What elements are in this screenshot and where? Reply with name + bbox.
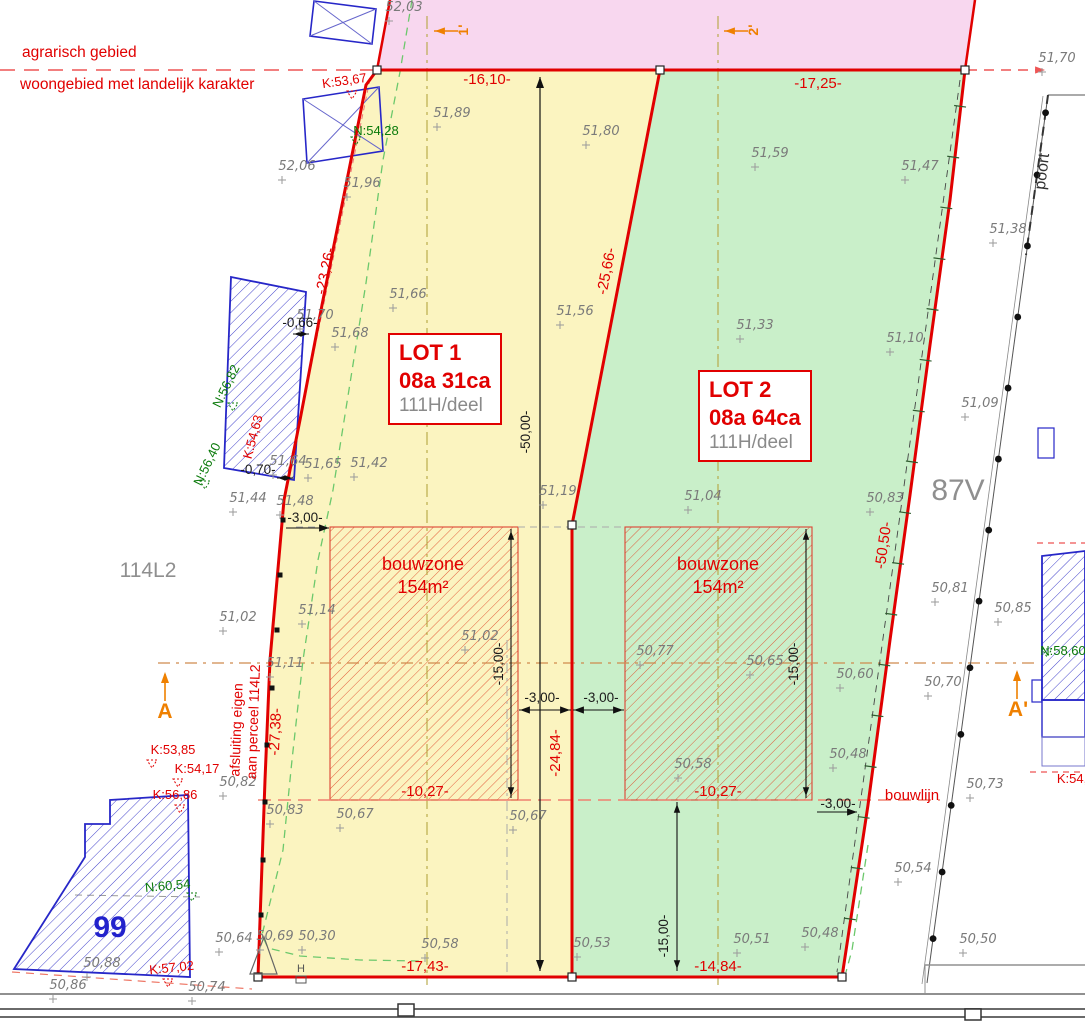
elevation-label: 51,68 <box>331 326 368 341</box>
parcel-number-label: 99 <box>93 911 126 944</box>
fence-post-dot <box>948 802 955 809</box>
elevation-cross <box>924 692 932 700</box>
dimension-label: -27,38- <box>266 708 285 756</box>
elevation-label: 51,44 <box>229 491 266 506</box>
manhole <box>398 1004 414 1016</box>
lot2-area: 08a 64ca <box>709 404 801 432</box>
dimension-label: -10,27- <box>694 783 742 800</box>
dimension-label: -50,00- <box>518 411 533 454</box>
boundary-post <box>278 573 283 578</box>
elevation-label: 50,58 <box>674 757 711 772</box>
dimension-label: -14,84- <box>694 958 742 975</box>
fence-post-dot <box>1005 385 1012 392</box>
lot2-parcel: 111H/deel <box>709 431 801 455</box>
dimension-label: -17,25- <box>794 75 842 92</box>
fence-post-dot <box>939 869 946 876</box>
dimension-label: -3,00- <box>820 796 855 811</box>
arrowhead <box>161 672 169 683</box>
elevation-label: 51,04 <box>684 489 721 504</box>
k-point-label: K:53,85 <box>151 742 196 757</box>
elevation-label: 51,65 <box>304 457 341 472</box>
lot2-info-box: LOT 2 08a 64ca 111H/deel <box>698 370 812 462</box>
boundary-post <box>261 858 266 863</box>
arrowhead <box>1035 66 1045 73</box>
building-right-annex2 <box>1042 737 1085 766</box>
k-point-label: K:54, <box>1057 771 1085 786</box>
elevation-label: 50,86 <box>49 978 86 993</box>
elevation-label: 51,38 <box>989 222 1026 237</box>
k-point-label: K:53,67 <box>321 70 367 91</box>
bench-mark-icon <box>173 779 183 787</box>
elevation-label: 51,11 <box>266 656 303 671</box>
elevation-label: 50,51 <box>733 932 770 947</box>
parcel-number-label: 87V <box>931 474 984 507</box>
dimension-label: -15,00- <box>656 915 671 958</box>
elevation-cross <box>219 792 227 800</box>
elevation-label: 51,96 <box>343 176 380 191</box>
elevation-cross <box>961 413 969 421</box>
boundary-post <box>270 686 275 691</box>
elevation-label: 50,67 <box>336 807 374 822</box>
elevation-label: 50,53 <box>573 936 610 951</box>
annotation-label: H <box>297 963 305 975</box>
zone-label-woongebied: woongebied met landelijk karakter <box>20 76 254 94</box>
elevation-label: 50,64 <box>215 931 252 946</box>
elevation-label: 50,88 <box>83 956 120 971</box>
k-point-label: K:54,17 <box>175 761 220 776</box>
building-tab <box>1032 680 1042 702</box>
elevation-cross <box>959 949 967 957</box>
lot2-name: LOT 2 <box>709 376 801 404</box>
section-marker-label: A <box>157 700 172 723</box>
bouwzone-area-label: 154m² <box>692 577 743 597</box>
n-point-label: N:58,60 <box>1040 643 1085 658</box>
fence-post-dot <box>1042 109 1049 116</box>
bouwzone-area-label: 154m² <box>397 577 448 597</box>
elevation-label: 50,83 <box>266 803 303 818</box>
elevation-label: 51,70 <box>1038 51 1075 66</box>
bench-mark-icon <box>147 760 157 768</box>
dimension-label: -24,84- <box>547 729 564 777</box>
survey-plan: 52,0351,8951,8052,0651,9651,5951,4751,70… <box>0 0 1085 1024</box>
dimension-label: -0,66- <box>282 315 317 330</box>
elevation-label: 51,02 <box>219 610 256 625</box>
elevation-label: 50,81 <box>931 581 968 596</box>
elevation-cross <box>215 948 223 956</box>
bouwzone-label: bouwzone <box>382 554 464 574</box>
dimension-label: -15,00- <box>786 643 801 686</box>
elevation-label: 51,14 <box>298 603 335 618</box>
boundary-post <box>275 628 280 633</box>
elevation-label: 50,50 <box>959 932 996 947</box>
elevation-label: 51,56 <box>556 304 593 319</box>
fence-post-dot <box>985 527 992 534</box>
section-marker-label: 1' <box>455 24 471 35</box>
elevation-cross <box>894 878 902 886</box>
elevation-cross <box>994 618 1002 626</box>
elevation-label: 50,73 <box>966 777 1003 792</box>
elevation-label: 51,48 <box>276 494 313 509</box>
elevation-label: 51,02 <box>461 629 498 644</box>
elevation-label: 50,85 <box>994 601 1031 616</box>
dimension-label: -17,43- <box>401 958 449 975</box>
dimension-label: -3,00- <box>287 510 322 525</box>
fence-post-dot <box>930 935 937 942</box>
elevation-cross <box>278 176 286 184</box>
annotation-label: poort <box>1032 152 1053 191</box>
building-right-annex <box>1042 700 1085 737</box>
fence-post-dot <box>995 456 1002 463</box>
elevation-label: 50,30 <box>298 929 335 944</box>
elevation-cross <box>49 995 57 1003</box>
survey-corner-marker <box>568 973 576 981</box>
fence-post-dot <box>1024 243 1031 250</box>
fence-post-dot <box>967 664 974 671</box>
lot1-area: 08a 31ca <box>399 367 491 395</box>
site-plan-drawing: 52,0351,8951,8052,0651,9651,5951,4751,70… <box>0 0 1085 1024</box>
dimension-label: -0,70- <box>240 462 275 477</box>
elevation-cross <box>229 508 237 516</box>
lot1-info-box: LOT 1 08a 31ca 111H/deel <box>388 333 502 425</box>
arrowhead <box>1013 670 1021 681</box>
dimension-label: -3,00- <box>524 690 559 705</box>
fence-post-dot <box>976 598 983 605</box>
elevation-cross <box>989 239 997 247</box>
lot1-name: LOT 1 <box>399 339 491 367</box>
zone-label-agrarisch: agrarisch gebied <box>22 44 137 62</box>
parcel-number-label: 114L2 <box>120 559 177 582</box>
elevation-label: 50,70 <box>924 675 961 690</box>
elevation-label: 51,42 <box>350 456 387 471</box>
fence-post-dot <box>1014 314 1021 321</box>
elevation-label: 50,54 <box>894 861 931 876</box>
k-point-label: K:56,86 <box>153 787 198 802</box>
annotation-label: aan perceel 114L2 <box>243 664 263 780</box>
survey-corner-marker <box>568 521 576 529</box>
elevation-cross <box>219 627 227 635</box>
dimension-label: -16,10- <box>463 71 511 88</box>
elevation-label: 50,65 <box>746 654 783 669</box>
manhole <box>965 1009 981 1020</box>
crossed-structure-icon <box>310 1 376 44</box>
elevation-label: 50,48 <box>801 926 838 941</box>
elevation-label: 50,60 <box>836 667 873 682</box>
section-marker-label: 2' <box>745 24 761 35</box>
elevation-label: 50,48 <box>829 747 866 762</box>
elevation-cross <box>188 997 196 1005</box>
dimension-label: -15,00- <box>491 643 506 686</box>
elevation-label: 51,33 <box>736 318 773 333</box>
n-point-label: N:54,28 <box>353 123 399 138</box>
elevation-cross <box>931 598 939 606</box>
elevation-label: 51,10 <box>886 331 923 346</box>
bouwzone-label: bouwzone <box>677 554 759 574</box>
elevation-label: 52,06 <box>278 159 315 174</box>
fence-post-dot <box>957 731 964 738</box>
annotation-label: bouwlijn <box>885 787 939 804</box>
elevation-label: 51,89 <box>433 106 470 121</box>
n-point-label: N:56,40 <box>190 440 223 488</box>
survey-corner-marker <box>656 66 664 74</box>
boundary-post <box>281 518 286 523</box>
boundary-post <box>259 913 264 918</box>
elevation-label: 51,19 <box>539 484 576 499</box>
elevation-label: 50,67 <box>509 809 547 824</box>
elevation-cross <box>966 794 974 802</box>
survey-corner-marker <box>373 66 381 74</box>
lot1-parcel: 111H/deel <box>399 394 491 418</box>
elevation-label: 50,58 <box>421 937 458 952</box>
elevation-label: 50,69 <box>256 929 293 944</box>
elevation-label: 51,47 <box>901 159 939 174</box>
elevation-label: 52,03 <box>385 0 422 15</box>
elevation-label: 51,80 <box>582 124 619 139</box>
elevation-label: 51,66 <box>389 287 426 302</box>
elevation-label: 51,09 <box>961 396 998 411</box>
survey-corner-marker <box>961 66 969 74</box>
elevation-label: 50,83 <box>866 491 903 506</box>
section-marker-label: A' <box>1008 698 1028 721</box>
building-right <box>1042 551 1085 700</box>
elevation-label: 51,59 <box>751 146 788 161</box>
dimension-label: -3,00- <box>583 690 618 705</box>
small-structure <box>1038 428 1054 458</box>
survey-corner-marker <box>838 973 846 981</box>
elevation-label: 50,74 <box>188 980 225 995</box>
elevation-label: 50,77 <box>636 644 674 659</box>
dimension-label: -10,27- <box>401 783 449 800</box>
